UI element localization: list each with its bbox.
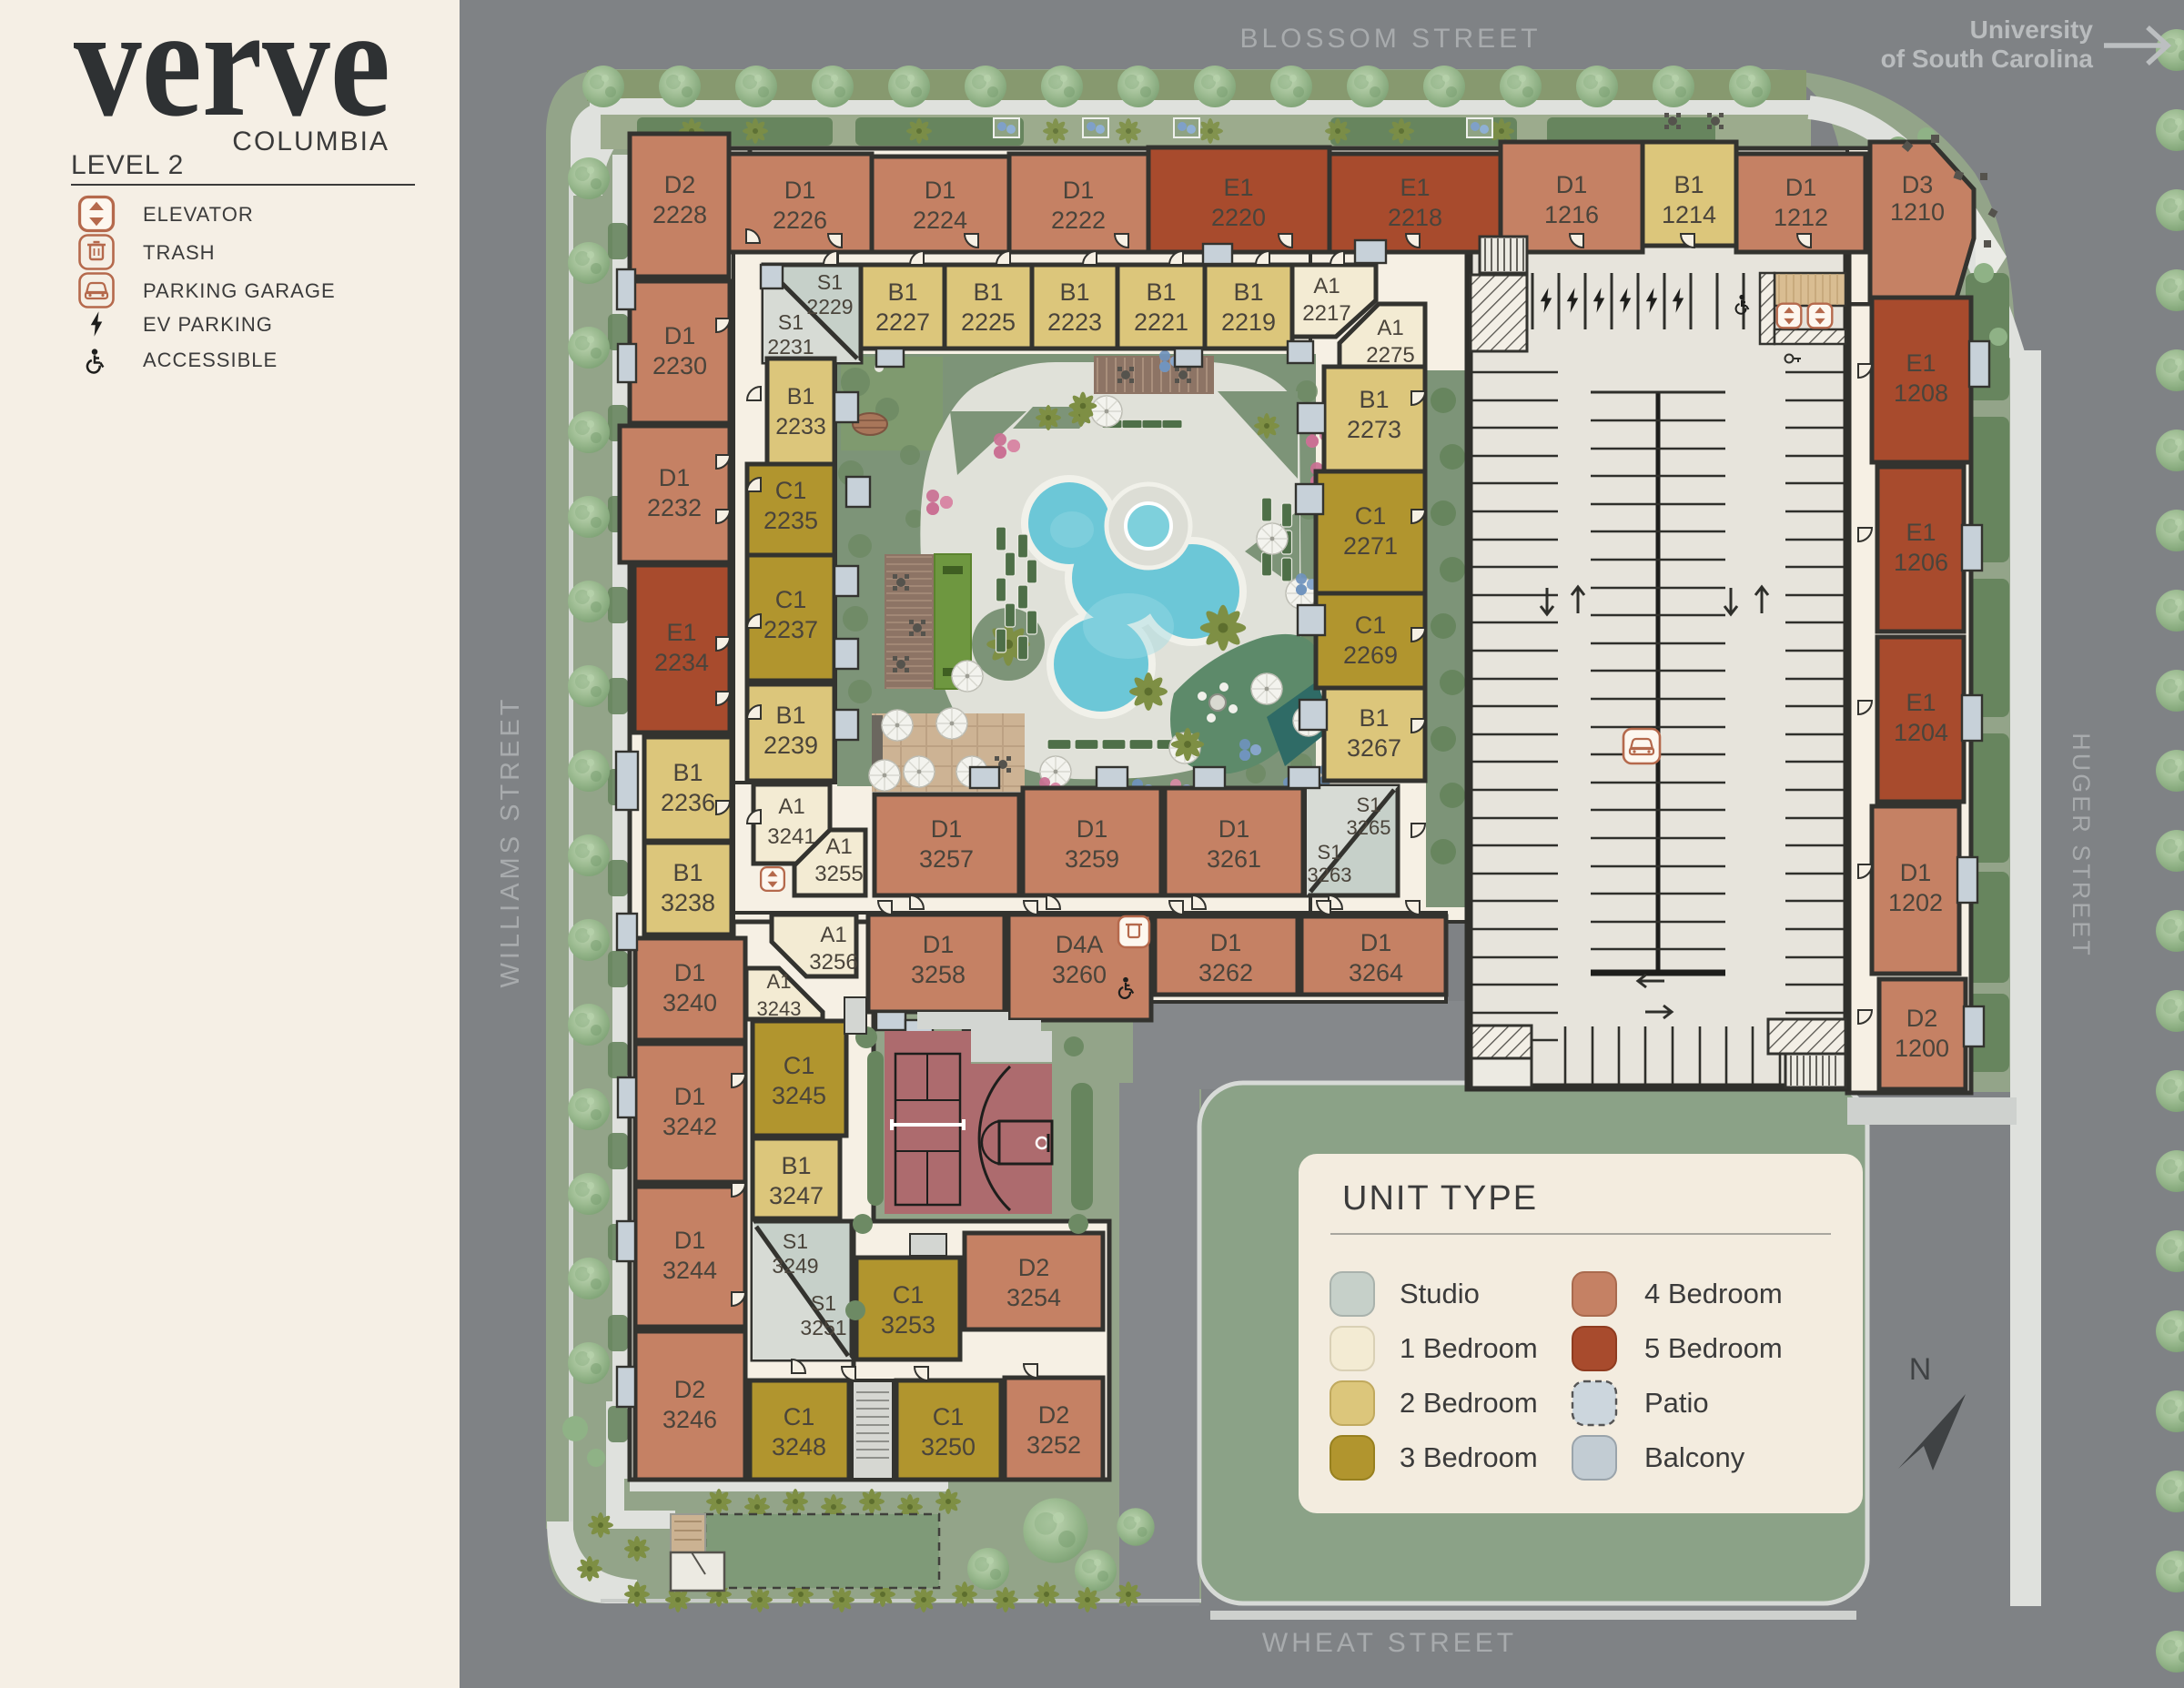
svg-text:B1: B1 [887,278,917,306]
svg-text:B1: B1 [672,859,703,886]
svg-text:3265: 3265 [1347,816,1391,839]
svg-text:of South Carolina: of South Carolina [1881,45,2094,73]
svg-text:B1: B1 [1059,278,1089,306]
svg-text:3 Bedroom: 3 Bedroom [1400,1441,1538,1473]
svg-text:3242: 3242 [662,1113,717,1140]
svg-text:E1: E1 [666,619,696,646]
svg-text:2232: 2232 [647,494,702,521]
svg-text:D1: D1 [674,1227,706,1254]
svg-text:2227: 2227 [875,308,930,336]
svg-text:A1: A1 [767,970,792,993]
svg-text:D1: D1 [925,177,956,204]
svg-text:A1: A1 [1313,274,1340,298]
svg-text:HUGER STREET: HUGER STREET [2068,733,2095,958]
svg-text:C1: C1 [775,477,807,504]
svg-text:D1: D1 [931,815,963,843]
svg-text:1204: 1204 [1894,719,1948,746]
svg-text:B1: B1 [672,759,703,786]
svg-text:D1: D1 [674,959,706,986]
svg-text:N: N [1909,1352,1932,1387]
svg-text:B1: B1 [775,702,805,729]
svg-text:D1: D1 [784,177,816,204]
svg-text:1214: 1214 [1662,201,1716,228]
svg-text:E1: E1 [1906,689,1936,716]
svg-text:D2: D2 [674,1376,706,1403]
svg-text:3261: 3261 [1207,845,1261,873]
svg-text:3241: 3241 [767,824,815,849]
svg-text:S1: S1 [778,310,804,334]
svg-text:1202: 1202 [1888,889,1943,916]
svg-text:D2: D2 [1906,1005,1938,1032]
svg-text:Patio: Patio [1644,1387,1709,1419]
svg-text:WILLIAMS STREET: WILLIAMS STREET [496,695,525,987]
svg-text:E1: E1 [1223,174,1253,201]
svg-text:D1: D1 [1785,174,1817,201]
svg-text:3245: 3245 [772,1082,826,1109]
svg-text:D1: D1 [1077,815,1108,843]
svg-text:2224: 2224 [913,207,967,234]
svg-text:C1: C1 [1355,612,1387,639]
svg-text:B1: B1 [787,384,815,409]
svg-text:2221: 2221 [1134,308,1188,336]
svg-text:3249: 3249 [772,1254,818,1278]
svg-text:3253: 3253 [881,1311,935,1339]
svg-text:E1: E1 [1906,349,1936,377]
svg-text:A1: A1 [1377,316,1403,340]
svg-text:1212: 1212 [1774,204,1828,231]
svg-text:C1: C1 [784,1052,815,1079]
svg-text:2234: 2234 [654,649,709,676]
svg-text:C1: C1 [1355,502,1387,530]
svg-text:D3: D3 [1902,171,1934,198]
svg-text:D1: D1 [674,1083,706,1110]
svg-text:WHEAT STREET: WHEAT STREET [1262,1628,1517,1658]
svg-text:C1: C1 [775,586,807,613]
svg-text:D1: D1 [1360,929,1392,956]
svg-text:2233: 2233 [775,414,826,440]
svg-text:1210: 1210 [1890,198,1945,226]
svg-text:2235: 2235 [763,507,818,534]
svg-text:3248: 3248 [772,1433,826,1461]
svg-text:S1: S1 [1357,793,1381,816]
svg-text:TRASH: TRASH [143,241,216,264]
svg-text:Studio: Studio [1400,1278,1480,1309]
svg-text:S1: S1 [817,270,843,294]
svg-text:D1: D1 [923,931,955,958]
svg-text:D1: D1 [1218,815,1250,843]
svg-text:3250: 3250 [921,1433,976,1461]
svg-text:A1: A1 [778,794,804,819]
svg-text:BLOSSOM STREET: BLOSSOM STREET [1239,24,1541,54]
svg-text:S1: S1 [783,1229,808,1253]
svg-text:2269: 2269 [1343,642,1398,669]
svg-text:B1: B1 [973,278,1003,306]
svg-text:D1: D1 [659,464,691,491]
svg-text:D4A: D4A [1056,931,1104,958]
svg-text:EV PARKING: EV PARKING [143,313,273,336]
svg-text:3254: 3254 [1006,1284,1061,1311]
svg-text:B1: B1 [1359,386,1389,413]
svg-text:1200: 1200 [1895,1035,1949,1062]
svg-text:D2: D2 [1038,1401,1070,1429]
svg-text:E1: E1 [1400,174,1430,201]
svg-text:1208: 1208 [1894,379,1948,407]
svg-text:D1: D1 [664,322,696,349]
svg-text:2226: 2226 [773,207,827,234]
svg-text:PARKING GARAGE: PARKING GARAGE [143,279,336,302]
svg-text:1206: 1206 [1894,549,1948,576]
svg-text:3267: 3267 [1347,734,1401,762]
svg-text:LEVEL 2: LEVEL 2 [71,150,184,180]
svg-text:2220: 2220 [1211,204,1266,231]
svg-text:3238: 3238 [661,889,715,916]
svg-text:3263: 3263 [1308,864,1352,886]
svg-text:2229: 2229 [806,295,853,318]
svg-text:D1: D1 [1556,171,1588,198]
svg-text:2228: 2228 [652,201,707,228]
svg-text:3246: 3246 [662,1406,717,1433]
svg-text:3258: 3258 [911,961,966,988]
svg-text:B1: B1 [1146,278,1176,306]
svg-text:2236: 2236 [661,789,715,816]
svg-text:3264: 3264 [1349,959,1403,986]
svg-text:3251: 3251 [800,1316,846,1339]
svg-text:3252: 3252 [1026,1431,1081,1459]
svg-text:2223: 2223 [1047,308,1102,336]
svg-text:2273: 2273 [1347,416,1401,443]
svg-text:D1: D1 [1210,929,1242,956]
svg-text:S1: S1 [1318,841,1342,864]
svg-text:C1: C1 [893,1281,925,1309]
svg-text:3259: 3259 [1065,845,1119,873]
svg-text:2219: 2219 [1221,308,1276,336]
svg-text:1216: 1216 [1544,201,1599,228]
svg-text:2217: 2217 [1302,301,1350,326]
svg-text:B1: B1 [1233,278,1263,306]
svg-text:Balcony: Balcony [1644,1441,1745,1473]
svg-text:2222: 2222 [1051,207,1106,234]
svg-text:3255: 3255 [814,862,863,886]
svg-text:4 Bedroom: 4 Bedroom [1644,1278,1783,1309]
svg-text:3257: 3257 [919,845,974,873]
svg-text:2275: 2275 [1366,343,1414,368]
svg-text:2239: 2239 [763,732,818,759]
svg-text:2271: 2271 [1343,532,1398,560]
svg-text:2230: 2230 [652,352,707,379]
svg-text:A1: A1 [820,923,846,947]
svg-text:3262: 3262 [1198,959,1253,986]
svg-text:2218: 2218 [1388,204,1442,231]
svg-text:ACCESSIBLE: ACCESSIBLE [143,349,278,371]
svg-text:B1: B1 [1359,704,1389,732]
svg-text:ELEVATOR: ELEVATOR [143,203,254,226]
svg-text:5 Bedroom: 5 Bedroom [1644,1332,1783,1364]
svg-text:D1: D1 [1900,859,1932,886]
svg-text:3256: 3256 [809,950,857,975]
svg-text:3247: 3247 [769,1182,824,1209]
svg-text:C1: C1 [784,1403,815,1430]
svg-text:B1: B1 [1673,171,1704,198]
svg-text:D1: D1 [1063,177,1095,204]
svg-text:D2: D2 [664,171,696,198]
svg-text:2225: 2225 [961,308,1016,336]
svg-text:UNIT TYPE: UNIT TYPE [1342,1179,1538,1218]
svg-text:2237: 2237 [763,616,818,643]
svg-text:C1: C1 [933,1403,965,1430]
svg-text:B1: B1 [781,1152,811,1179]
svg-text:E1: E1 [1906,519,1936,546]
svg-text:1 Bedroom: 1 Bedroom [1400,1332,1538,1364]
svg-text:University: University [1970,15,2094,44]
svg-text:A1: A1 [825,834,852,859]
svg-text:D2: D2 [1018,1254,1050,1281]
svg-text:2 Bedroom: 2 Bedroom [1400,1387,1538,1419]
svg-text:3260: 3260 [1052,961,1107,988]
svg-text:3243: 3243 [757,997,802,1020]
svg-text:3240: 3240 [662,989,717,1016]
svg-text:COLUMBIA: COLUMBIA [232,126,389,157]
svg-text:2231: 2231 [767,335,814,359]
svg-text:S1: S1 [811,1291,836,1315]
svg-text:3244: 3244 [662,1257,717,1284]
